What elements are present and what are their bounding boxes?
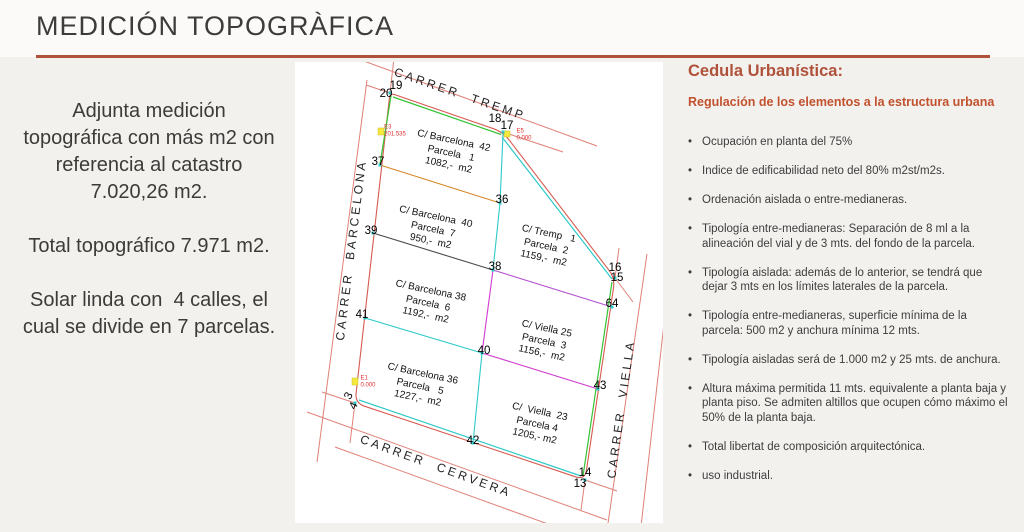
vertex-number: 38 (489, 261, 502, 273)
vertex-number: 64 (606, 298, 619, 310)
bullet-item: •Ocupación en planta del 75% (688, 135, 1010, 150)
street-name-label: CARRER TREMP (392, 65, 527, 123)
bullet-item: •Tipología aislada: además de lo anterio… (688, 266, 1010, 295)
vertex-number: 43 (594, 380, 607, 392)
left-paragraph-line: cual se divide en 7 parcelas. (5, 314, 293, 341)
benchmark-value: 0.000 (360, 382, 375, 389)
bullet-text: Tipología entre-medianeras, superficie m… (702, 309, 1008, 338)
vertex-number: 40 (478, 345, 491, 357)
bullet-marker: • (688, 309, 702, 338)
bullet-marker: • (688, 222, 702, 251)
bullet-marker: • (688, 382, 702, 426)
bullet-marker: • (688, 440, 702, 455)
page-title: MEDICIÓN TOPOGRÀFICA (36, 11, 394, 42)
bullet-item: •Tipología entre-medianeras, superficie … (688, 309, 1010, 338)
left-paragraph-line: 7.020,26 m2. (5, 179, 293, 206)
bullet-marker: • (688, 164, 702, 179)
parcel-label: C/ Viella 25Parcela 31156,- m2 (515, 318, 573, 365)
bullet-text: Tipología aislada: además de lo anterior… (702, 266, 1008, 295)
vertex-number: 36 (496, 194, 509, 206)
left-paragraph-line: topográfica con más m2 con (5, 125, 293, 152)
left-paragraph: Total topográfico 7.971 m2. (5, 233, 293, 260)
bullet-text: Total libertat de composición arquitectó… (702, 440, 1008, 455)
parcel-label: C/ Barcelona 40Parcela 7950,- m2 (393, 204, 474, 256)
survey-map-panel: CARRER TREMPCARRER BARCELONACARRER CERVE… (295, 62, 663, 523)
benchmark-value: 201.535 (384, 131, 406, 138)
bullet-marker: • (688, 135, 702, 150)
vertex-number: 13 (574, 478, 587, 490)
bullet-text: Altura máxima permitida 11 mts. equivale… (702, 382, 1008, 426)
vertex-number: 18 (489, 113, 502, 125)
parcel-label: C/ Tremp 1Parcela 21159,- m2 (515, 223, 577, 271)
vertex-number: 4 (347, 400, 361, 411)
cedula-panel: Cedula Urbanística: Regulación de los el… (688, 62, 1010, 498)
left-paragraph-line: Adjunta medición (5, 98, 293, 125)
bullet-marker: • (688, 353, 702, 368)
parcel-label: C/ Barcelona 42Parcela 11082,- m2 (411, 128, 492, 180)
vertex-number: 20 (380, 88, 393, 100)
bullet-item: •uso industrial. (688, 469, 1010, 484)
street-name-label: CARRER CERVERA (358, 432, 513, 500)
benchmark-label: E3201.535 (384, 125, 406, 138)
bullet-text: Indice de edificabilidad neto del 80% m2… (702, 164, 1008, 179)
vertex-number: 42 (467, 435, 480, 447)
vertex-number: 15 (611, 272, 624, 284)
vertex-number: 37 (372, 156, 385, 168)
benchmark-value: 0.000 (516, 135, 531, 142)
bullet-item: •Altura máxima permitida 11 mts. equival… (688, 382, 1010, 426)
parcel-label: C/ Barcelona 38Parcela 61192,- m2 (389, 278, 467, 330)
bullet-item: •Indice de edificabilidad neto del 80% m… (688, 164, 1010, 179)
cedula-bullet-list: •Ocupación en planta del 75%•Indice de e… (688, 135, 1010, 483)
bullet-item: •Ordenación aislada o entre-medianeras. (688, 193, 1010, 208)
bullet-item: •Tipología entre-medianeras: Separación … (688, 222, 1010, 251)
bullet-marker: • (688, 469, 702, 484)
bullet-text: uso industrial. (702, 469, 1008, 484)
map-label-layer: CARRER TREMPCARRER BARCELONACARRER CERVE… (295, 62, 663, 523)
bullet-marker: • (688, 193, 702, 208)
left-text-panel: Adjunta medicióntopográfica con más m2 c… (5, 98, 293, 368)
benchmark-label: E50.000 (516, 129, 531, 142)
vertex-number: 41 (356, 309, 369, 321)
cedula-heading: Cedula Urbanística: (688, 62, 1010, 81)
left-paragraph-line: Solar linda con 4 calles, el (5, 287, 293, 314)
vertex-number: 17 (501, 120, 514, 132)
street-name-label: CARRER VIELLA (604, 339, 637, 480)
left-paragraph: Adjunta medicióntopográfica con más m2 c… (5, 98, 293, 206)
bullet-item: •Total libertat de composición arquitect… (688, 440, 1010, 455)
benchmark-label: E10.000 (360, 376, 375, 389)
bullet-text: Ordenación aislada o entre-medianeras. (702, 193, 1008, 208)
left-paragraph-line: referencia al catastro (5, 152, 293, 179)
vertex-number: 39 (365, 225, 378, 237)
bullet-text: Tipología aisladas será de 1.000 m2 y 25… (702, 353, 1008, 368)
bullet-text: Ocupación en planta del 75% (702, 135, 1008, 150)
bullet-marker: • (688, 266, 702, 295)
left-paragraph: Solar linda con 4 calles, elcual se divi… (5, 287, 293, 341)
bullet-text: Tipología entre-medianeras: Separación d… (702, 222, 1008, 251)
title-underline (36, 55, 990, 58)
parcel-label: C/ Viella 23Parcela 41205,- m2 (505, 401, 568, 449)
parcel-label: C/ Barcelona 36Parcela 51227,- m2 (381, 361, 459, 413)
left-paragraph-line: Total topográfico 7.971 m2. (5, 233, 293, 260)
cedula-subheading: Regulación de los elementos a la estruct… (688, 95, 1010, 109)
bullet-item: •Tipología aisladas será de 1.000 m2 y 2… (688, 353, 1010, 368)
